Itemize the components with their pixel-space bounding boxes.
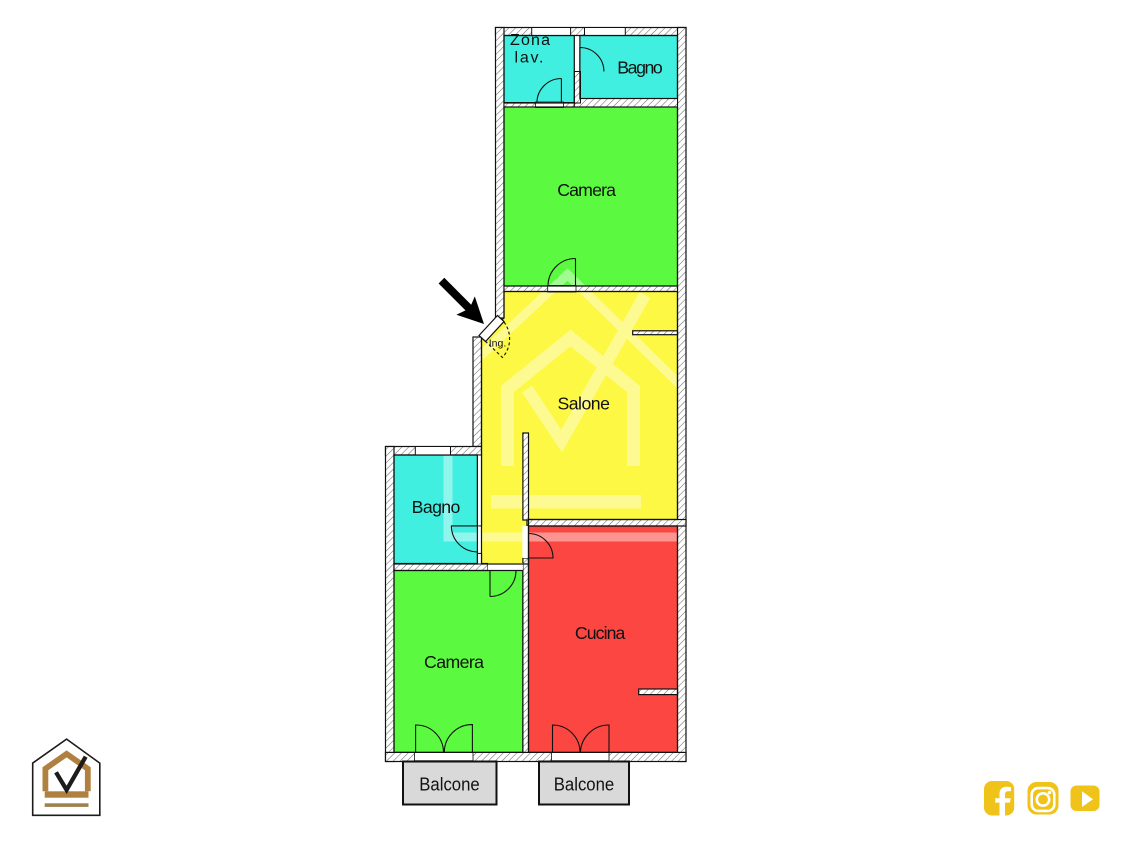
svg-text:Bagno: Bagno [617, 58, 663, 78]
svg-text:Cucina: Cucina [575, 623, 626, 643]
svg-text:Balcone: Balcone [554, 775, 615, 795]
svg-text:Bagno: Bagno [412, 497, 461, 517]
svg-text:Salone: Salone [557, 394, 610, 414]
svg-text:Camera: Camera [424, 652, 484, 672]
svg-text:Balcone: Balcone [419, 775, 480, 795]
svg-text:Camera: Camera [557, 180, 616, 200]
svg-text:Zona: Zona [510, 32, 550, 49]
svg-text:Ing.: Ing. [489, 338, 507, 350]
